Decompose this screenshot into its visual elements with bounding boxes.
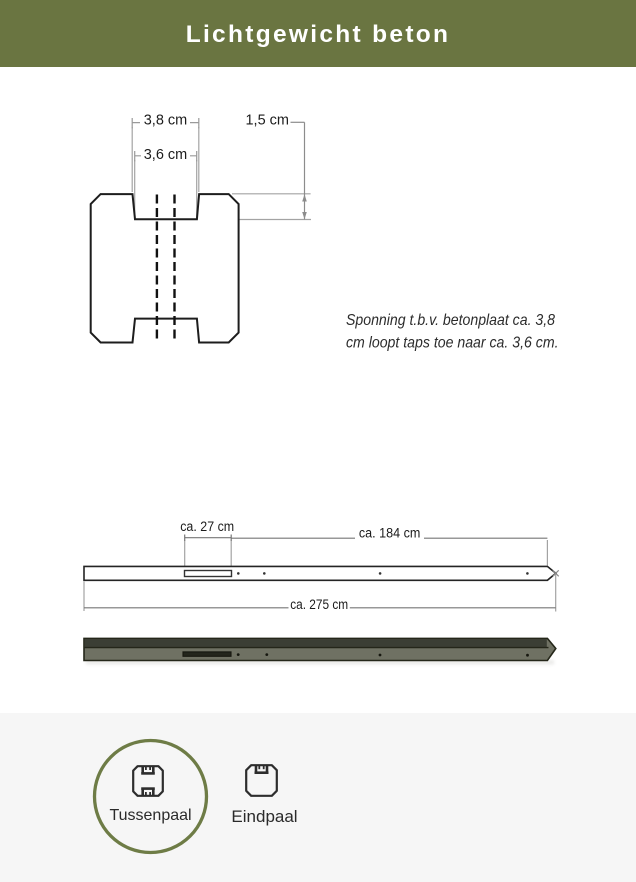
svg-text:ca. 184 cm: ca. 184 cm: [359, 526, 421, 541]
svg-text:Sponning t.b.v. betonplaat ca.: Sponning t.b.v. betonplaat ca. 3,8: [346, 312, 555, 329]
svg-text:3,6 cm: 3,6 cm: [144, 147, 188, 163]
svg-text:ca. 275 cm: ca. 275 cm: [290, 597, 348, 612]
svg-text:1,5 cm: 1,5 cm: [246, 113, 290, 129]
svg-text:cm loopt taps toe naar ca. 3,6: cm loopt taps toe naar ca. 3,6 cm.: [346, 335, 559, 352]
svg-text:3,8 cm: 3,8 cm: [144, 113, 188, 129]
svg-text:ca. 27 cm: ca. 27 cm: [180, 519, 234, 534]
